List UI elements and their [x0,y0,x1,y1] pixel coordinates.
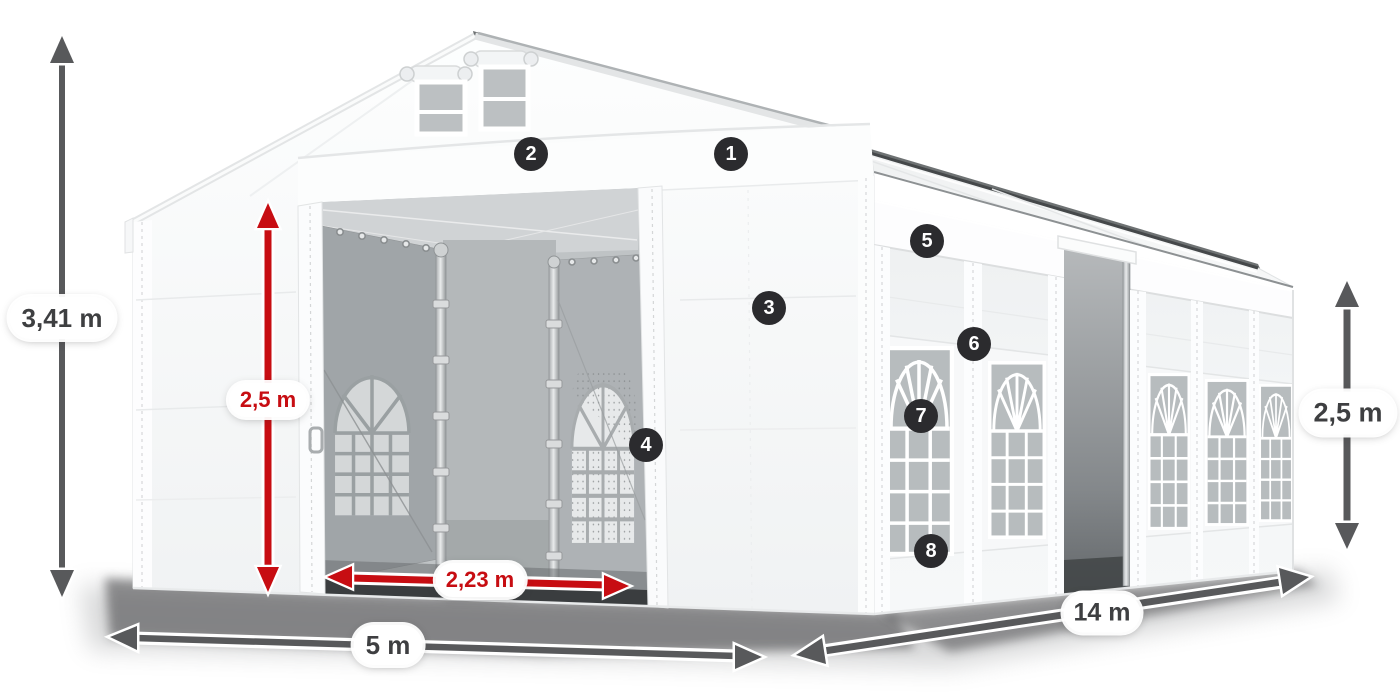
side-window-2 [990,363,1045,537]
tent-dimension-diagram: 3,41 m 2,5 m 2,23 m 5 m 14 m 2,5 m 1 2 3… [0,0,1400,700]
side-window-5 [1260,385,1292,520]
front-width-label: 5 m [354,625,423,665]
callout-badge-4[interactable]: 4 [629,428,663,462]
entrance-width-value: 2,23 m [446,569,515,591]
front-width-value: 5 m [366,632,411,658]
entrance-height-label: 2,5 m [229,383,307,417]
callout-badge-7[interactable]: 7 [904,399,938,433]
callout-badge-5[interactable]: 5 [910,224,944,258]
wall-height-value: 2,5 m [1313,400,1382,427]
side-window-4 [1206,380,1247,524]
side-length-label: 14 m [1064,594,1141,633]
callout-badge-3[interactable]: 3 [752,291,786,325]
wall-height-label: 2,5 m [1301,392,1394,435]
side-window-3 [1149,375,1188,529]
callout-badge-2[interactable]: 2 [514,137,548,171]
side-doorway [1058,236,1136,595]
total-height-label: 3,41 m [10,297,115,339]
entrance-width-label: 2,23 m [436,563,525,597]
callout-badge-1[interactable]: 1 [714,137,748,171]
side-window-1 [886,348,952,554]
callout-badge-8[interactable]: 8 [914,534,948,568]
tent [125,31,1293,614]
side-length-value: 14 m [1074,601,1131,626]
callout-badge-6[interactable]: 6 [957,327,991,361]
total-height-value: 3,41 m [22,305,103,331]
entrance-height-value: 2,5 m [240,389,296,411]
front-opening-interior [322,188,648,606]
tent-illustration [0,0,1400,700]
